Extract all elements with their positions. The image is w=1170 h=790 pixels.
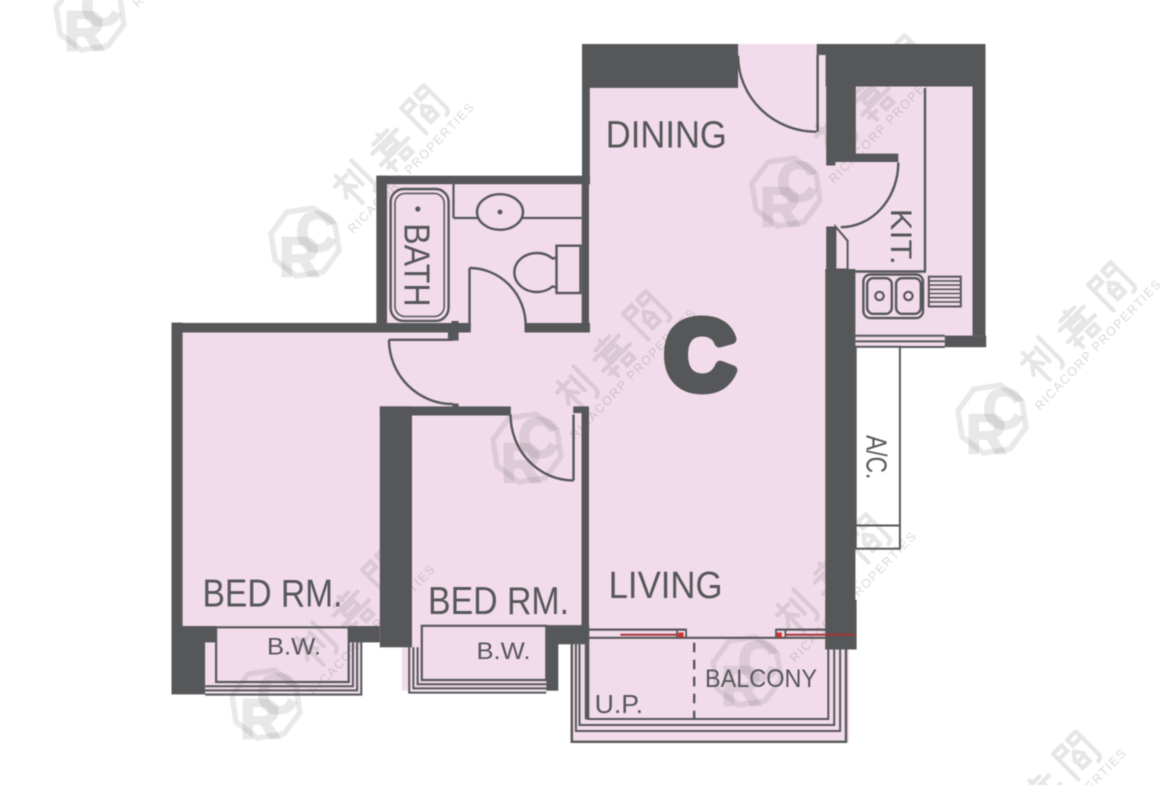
- svg-text:BATH: BATH: [397, 223, 438, 307]
- svg-text:B.W.: B.W.: [477, 638, 531, 665]
- svg-text:C: C: [665, 300, 735, 409]
- svg-text:BED RM.: BED RM.: [428, 580, 569, 623]
- svg-text:KIT.: KIT.: [884, 209, 917, 265]
- svg-text:A/C.: A/C.: [859, 435, 891, 479]
- svg-text:DINING: DINING: [606, 115, 727, 157]
- svg-text:BED RM.: BED RM.: [203, 572, 343, 615]
- svg-text:U.P.: U.P.: [595, 691, 644, 719]
- svg-text:LIVING: LIVING: [609, 565, 723, 607]
